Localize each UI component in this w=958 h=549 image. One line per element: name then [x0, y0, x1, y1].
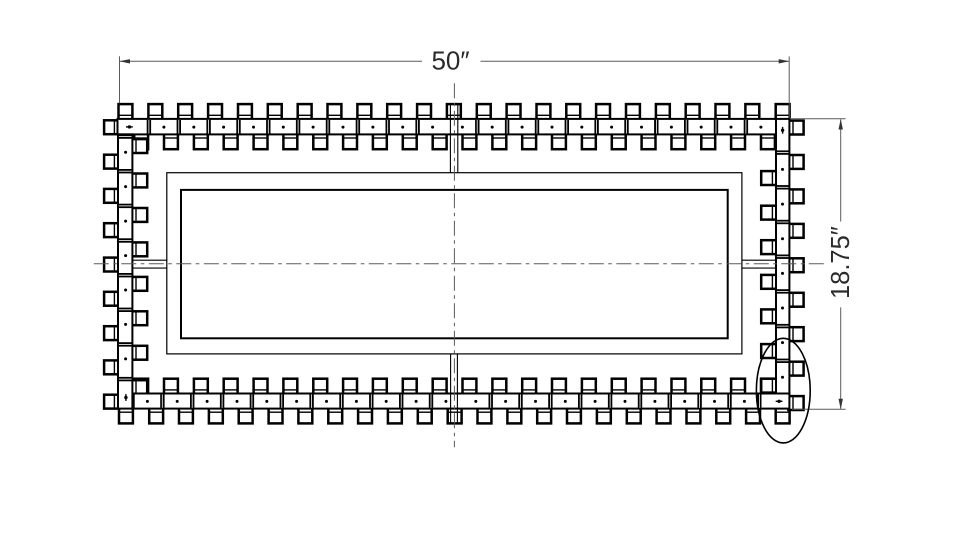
svg-text:50″: 50″ — [431, 46, 469, 76]
svg-text:18.75″: 18.75″ — [827, 226, 855, 299]
